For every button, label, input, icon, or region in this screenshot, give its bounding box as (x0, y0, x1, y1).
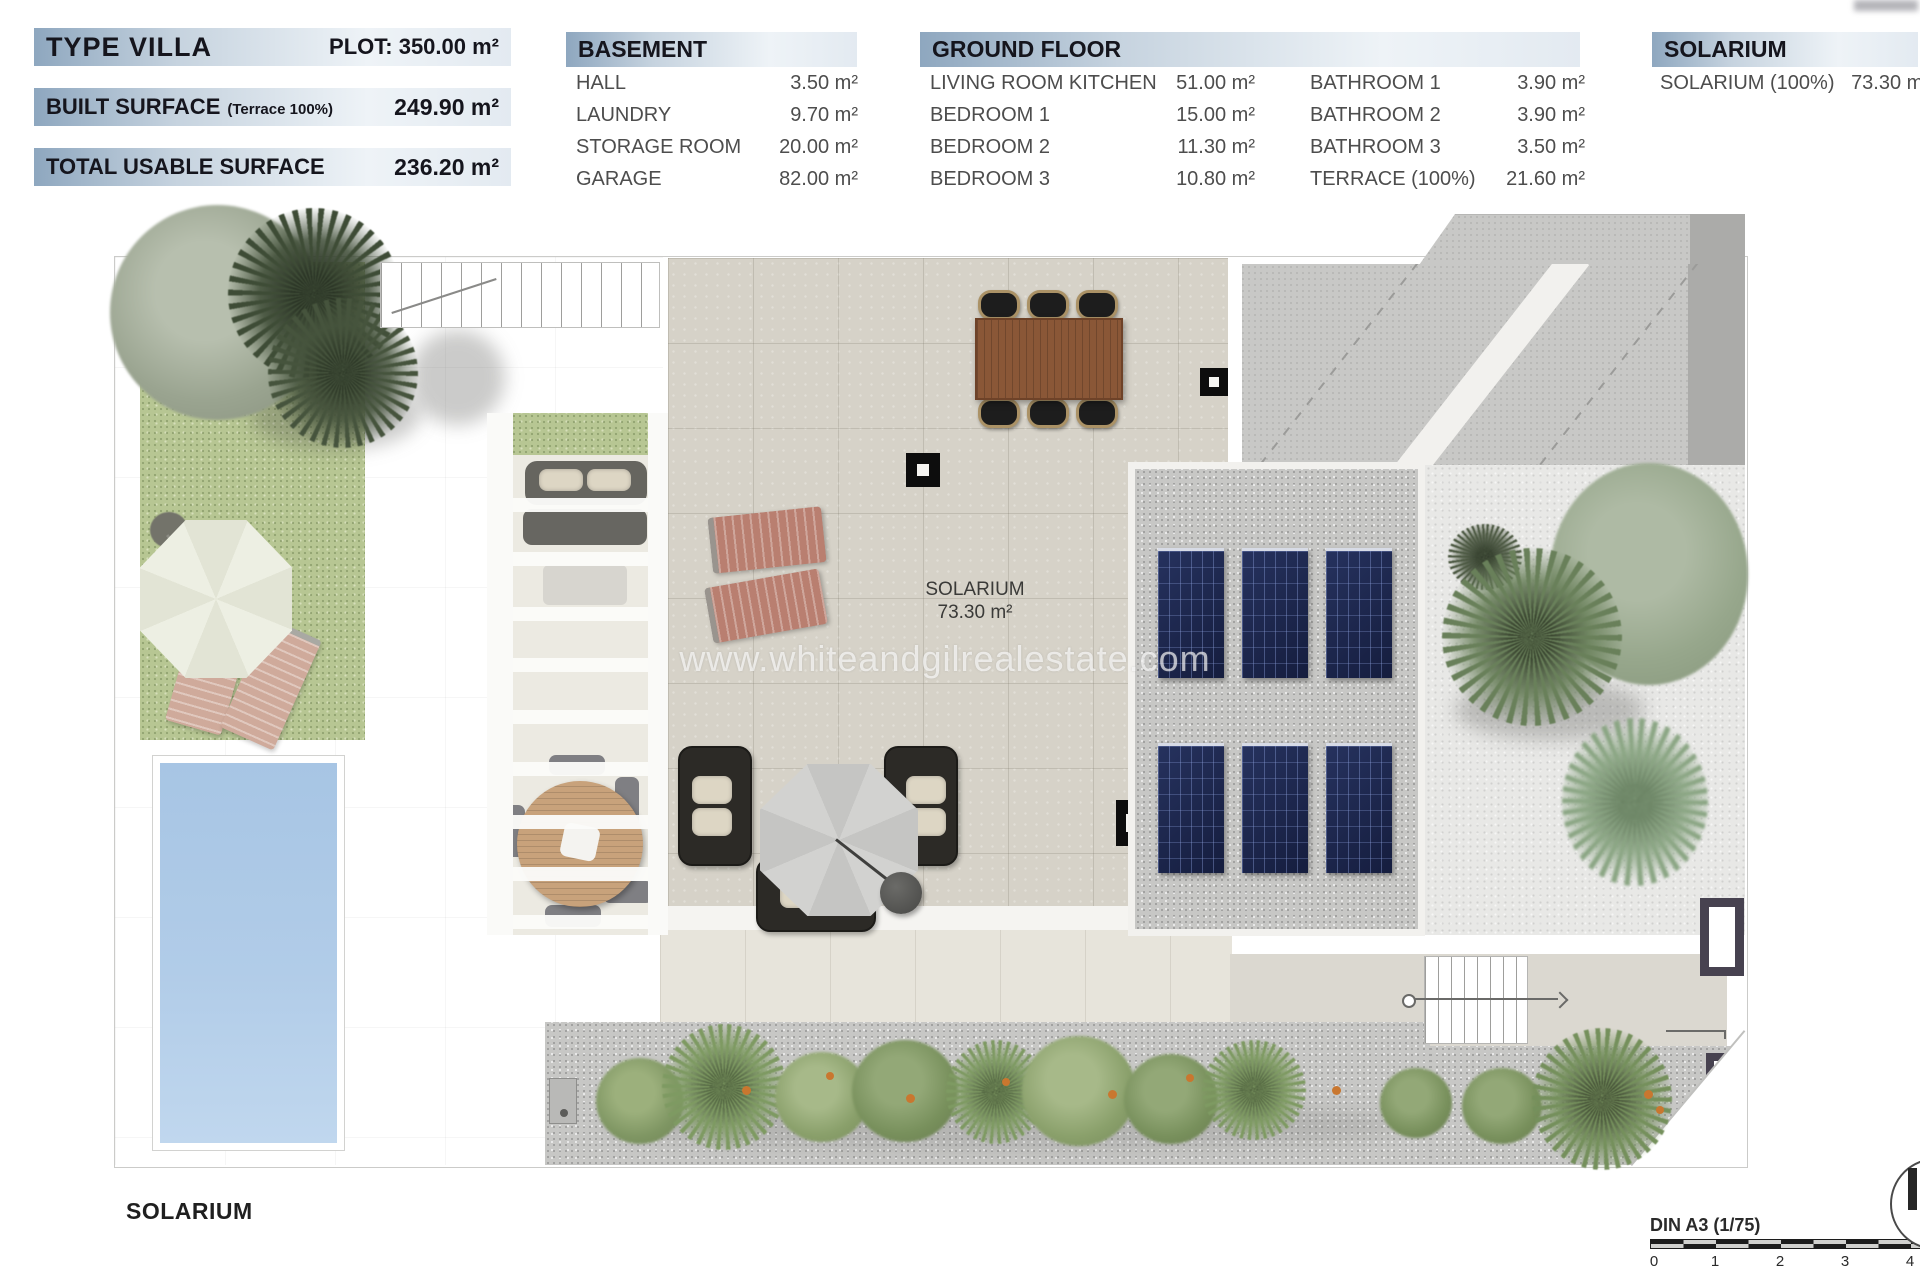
summary-built-bar: BUILT SURFACE (Terrace 100%) 249.90 m² (34, 88, 511, 126)
orientation-symbol (1890, 1158, 1920, 1250)
row-value: 3.50 m² (790, 70, 858, 96)
roof-terrace-concrete (1240, 264, 1745, 465)
bush (852, 1040, 958, 1142)
pergola-slat (487, 710, 668, 724)
staircase-top (380, 262, 660, 328)
stair-break-line (391, 278, 496, 314)
upper-roof-block (1378, 214, 1745, 266)
row-value: 3.90 m² (1517, 70, 1585, 96)
scale-tick: 0 (1650, 1253, 1658, 1270)
ground-floor-header-bar: GROUND FLOOR (920, 32, 1580, 67)
row-value: 51.00 m² (1176, 70, 1255, 96)
row-value: 21.60 m² (1506, 166, 1585, 192)
staircase-bottom (1424, 956, 1528, 1044)
stair-direction-arrow (1408, 998, 1558, 1000)
pool-water (160, 763, 337, 1143)
solar-panel (1158, 743, 1224, 873)
table-row: BEDROOM 2 11.30 m² (930, 134, 1255, 160)
solar-panel (1242, 548, 1308, 678)
pergola-slat (487, 552, 668, 566)
row-label: LIVING ROOM KITCHEN (930, 70, 1157, 96)
built-surface-label: BUILT SURFACE (46, 94, 220, 120)
row-value: 73.30 m² (1851, 70, 1920, 96)
scale-bar-label: DIN A3 (1/75) (1650, 1215, 1760, 1236)
flower (1108, 1090, 1117, 1099)
row-value: 3.90 m² (1517, 102, 1585, 128)
bush-palm (1202, 1040, 1306, 1140)
row-label: BEDROOM 3 (930, 166, 1050, 192)
flower (1644, 1090, 1653, 1099)
room-area: 73.30 m² (880, 601, 1070, 624)
pergola-slat (487, 815, 668, 829)
row-value: 11.30 m² (1178, 134, 1255, 160)
watermark: www.whiteandgilrealestate.com (655, 638, 1235, 680)
row-label: BATHROOM 3 (1310, 134, 1441, 160)
basement-table: HALL 3.50 m² LAUNDRY 9.70 m² STORAGE ROO… (576, 70, 858, 200)
roof-opening (1200, 368, 1228, 396)
row-value: 9.70 m² (790, 102, 858, 128)
flower (742, 1086, 751, 1095)
scale-tick: 4 (1906, 1253, 1914, 1270)
dining-chair (1027, 398, 1069, 428)
row-value: 82.00 m² (779, 166, 858, 192)
flower (826, 1072, 834, 1080)
pergola-grass-strip (487, 413, 668, 455)
solar-panel (1242, 743, 1308, 873)
row-label: HALL (576, 70, 626, 96)
spiky-palm (1442, 548, 1622, 726)
bush (1022, 1036, 1136, 1146)
parasol-base (880, 872, 922, 914)
bush (1380, 1068, 1452, 1138)
flower (1656, 1106, 1664, 1114)
ground-floor-title: GROUND FLOOR (932, 36, 1121, 63)
table-row: HALL 3.50 m² (576, 70, 858, 96)
fluffy-palm (1562, 718, 1708, 886)
row-label: BEDROOM 2 (930, 134, 1050, 160)
table-row: BEDROOM 3 10.80 m² (930, 166, 1255, 192)
solarium-table: SOLARIUM (100%) 73.30 m² (1660, 70, 1920, 104)
row-value: 15.00 m² (1176, 102, 1255, 128)
row-label: BEDROOM 1 (930, 102, 1050, 128)
pool (152, 755, 345, 1151)
table-row: BEDROOM 1 15.00 m² (930, 102, 1255, 128)
room-label: SOLARIUM 73.30 m² (880, 578, 1070, 624)
outdoor-sofa (678, 746, 752, 866)
scale-tick: 1 (1711, 1253, 1719, 1270)
bush-palm (662, 1024, 786, 1150)
dining-chair (1076, 398, 1118, 428)
dining-chair (1076, 290, 1118, 320)
scale-bar: DIN A3 (1/75) 0 1 2 3 4 (1650, 1239, 1920, 1279)
row-label: TERRACE (100%) (1310, 166, 1476, 192)
basement-header-bar: BASEMENT (566, 32, 857, 67)
row-label: STORAGE ROOM (576, 134, 741, 160)
floor-caption: SOLARIUM (126, 1198, 253, 1225)
pergola-table (543, 565, 627, 605)
room-name: SOLARIUM (880, 578, 1070, 601)
solarium-title: SOLARIUM (1664, 36, 1787, 63)
table-row: BATHROOM 1 3.90 m² (1310, 70, 1585, 96)
row-value: 10.80 m² (1176, 166, 1255, 192)
summary-usable-bar: TOTAL USABLE SURFACE 236.20 m² (34, 148, 511, 186)
dining-table (975, 318, 1123, 400)
type-villa-label: TYPE VILLA (46, 32, 212, 63)
total-usable-value: 236.20 m² (394, 154, 499, 181)
solar-panel (1326, 548, 1392, 678)
flower (1186, 1074, 1194, 1082)
summary-type-bar: TYPE VILLA PLOT: 350.00 m² (34, 28, 511, 66)
roof-joint-path (1381, 264, 1589, 465)
flower (1002, 1078, 1010, 1086)
row-value: 3.50 m² (1517, 134, 1585, 160)
table-row: GARAGE 82.00 m² (576, 166, 858, 192)
white-separator (1228, 258, 1242, 465)
total-usable-label: TOTAL USABLE SURFACE (46, 154, 325, 180)
table-row: TERRACE (100%) 21.60 m² (1310, 166, 1585, 192)
round-dining-table (517, 781, 643, 907)
table-row: SOLARIUM (100%) 73.30 m² (1660, 70, 1920, 96)
row-label: BATHROOM 1 (1310, 70, 1441, 96)
ground-floor-col2: BATHROOM 1 3.90 m² BATHROOM 2 3.90 m² BA… (1310, 70, 1585, 200)
dining-chair (1027, 290, 1069, 320)
roof-dark-strip (1688, 264, 1745, 465)
table-row: LAUNDRY 9.70 m² (576, 102, 858, 128)
grass-tuft (1532, 1028, 1672, 1170)
skylight-frame (1700, 898, 1744, 976)
row-label: GARAGE (576, 166, 662, 192)
solarium-header-bar: SOLARIUM (1652, 32, 1918, 67)
pergola-slat (487, 867, 668, 881)
pergola-slat (487, 498, 668, 512)
flower (1332, 1086, 1341, 1095)
cropped-logo-fragment (1854, 0, 1918, 11)
table-row: STORAGE ROOM 20.00 m² (576, 134, 858, 160)
table-row: LIVING ROOM KITCHEN 51.00 m² (930, 70, 1255, 96)
table-row: BATHROOM 2 3.90 m² (1310, 102, 1585, 128)
pergola-slat (487, 762, 668, 776)
built-surface-value: 249.90 m² (394, 94, 499, 121)
flower (906, 1094, 915, 1103)
sun-lounger (707, 506, 826, 574)
pergola-slat (487, 607, 668, 621)
solar-panel (1326, 743, 1392, 873)
dining-chair (978, 398, 1020, 428)
row-value: 20.00 m² (779, 134, 858, 160)
tree-shadow (410, 330, 505, 425)
ground-floor-col1: LIVING ROOM KITCHEN 51.00 m² BEDROOM 1 1… (930, 70, 1255, 200)
roof-dark-strip (1690, 214, 1745, 266)
row-label: SOLARIUM (100%) (1660, 70, 1835, 96)
scale-tick: 2 (1776, 1253, 1784, 1270)
dining-chair (978, 290, 1020, 320)
expansion-joint (1240, 264, 1430, 465)
pergola-slat (487, 658, 668, 672)
pergola-slat (487, 915, 668, 929)
pergola-rail (487, 413, 513, 935)
lamp-post (549, 1078, 577, 1124)
table-row: BATHROOM 3 3.50 m² (1310, 134, 1585, 160)
roof-opening (906, 453, 940, 487)
floor-plan-sheet: TYPE VILLA PLOT: 350.00 m² BUILT SURFACE… (0, 0, 1920, 1280)
lower-terrace-strip (660, 930, 1232, 1022)
garden-parasol (140, 520, 292, 678)
plot-value: PLOT: 350.00 m² (329, 34, 499, 60)
scale-tick: 3 (1841, 1253, 1849, 1270)
railing-line (1666, 1030, 1726, 1032)
bush (1462, 1068, 1542, 1144)
pergola (487, 413, 668, 935)
pergola-daybed (523, 509, 647, 545)
row-label: BATHROOM 2 (1310, 102, 1441, 128)
scale-bar-segments (1651, 1244, 1920, 1248)
basement-title: BASEMENT (578, 36, 707, 63)
row-label: LAUNDRY (576, 102, 671, 128)
built-surface-note: (Terrace 100%) (227, 101, 333, 118)
